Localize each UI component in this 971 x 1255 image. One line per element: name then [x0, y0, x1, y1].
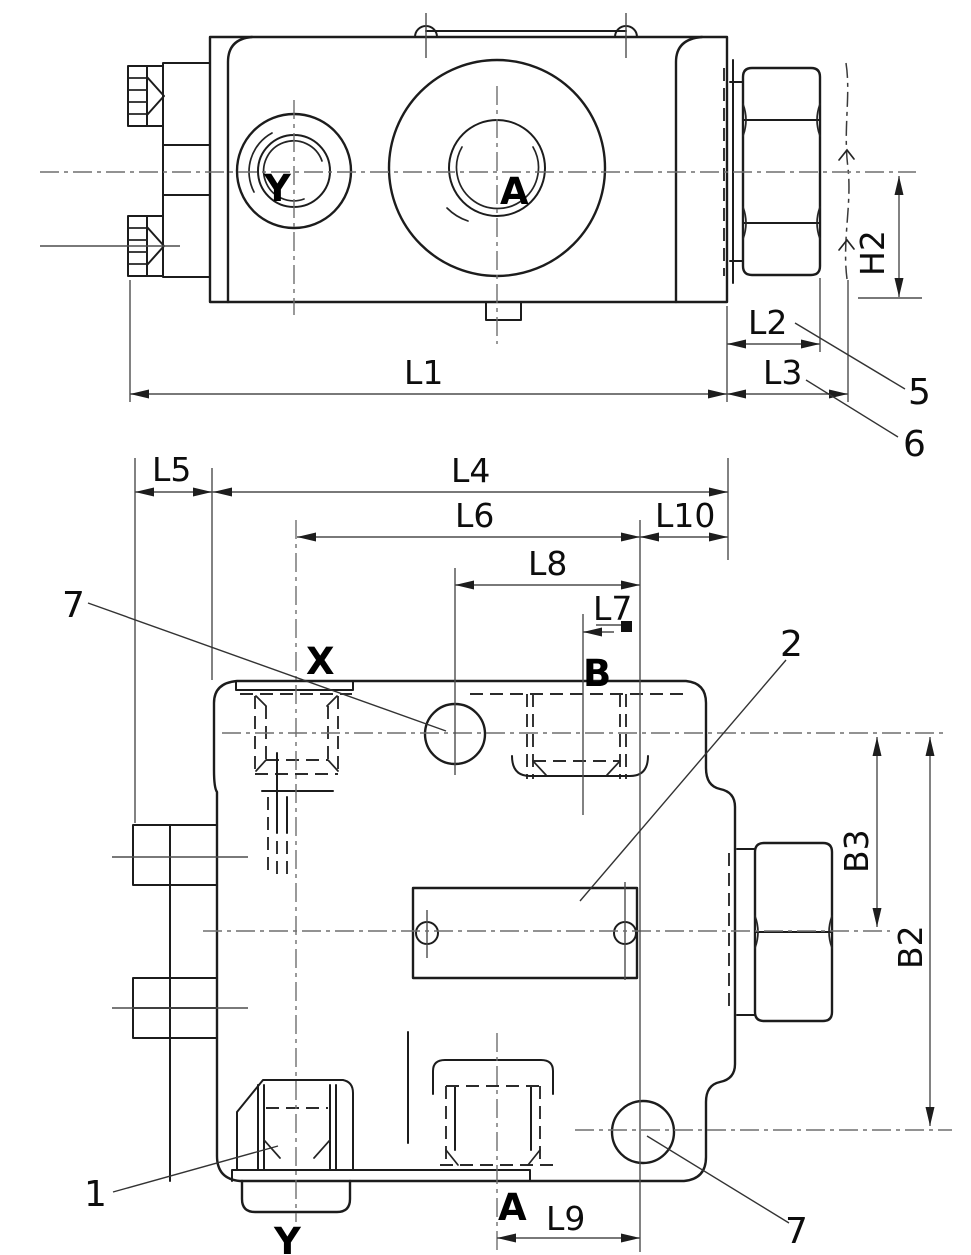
- callout-7-upper: 7: [62, 585, 446, 731]
- valve-drawing-svg: Y A H2: [0, 0, 971, 1255]
- dim-l3-label: L3: [763, 353, 802, 392]
- port-y-label: Y: [263, 167, 292, 210]
- mounting-screws-left: [40, 63, 210, 277]
- break-line-zigzags: [839, 150, 854, 250]
- callout-1-label: 1: [84, 1174, 107, 1215]
- top-screw-centerlines: [426, 13, 626, 58]
- dim-l7: L7: [583, 589, 632, 815]
- top-view: Y A H2: [40, 13, 931, 465]
- port-y-bottom-label: Y: [273, 1220, 302, 1255]
- screw-upper-tip: [147, 77, 164, 115]
- break-line: [846, 63, 849, 279]
- callout-6-leader: [806, 380, 898, 437]
- callout-5: 5: [795, 323, 931, 413]
- dim-l8: L8: [455, 544, 640, 775]
- port-b: B: [470, 652, 684, 779]
- callout-7-lower-label: 7: [785, 1211, 808, 1252]
- bottom-view: X B Y: [62, 450, 952, 1255]
- dim-l10: L10: [640, 496, 728, 1252]
- port-a-bottom-label: A: [498, 1186, 527, 1229]
- dim-l5: L5: [135, 450, 212, 823]
- callout-7-lower: 7: [647, 1136, 808, 1252]
- screw-upper-body: [128, 66, 163, 126]
- port-a-bottom: A: [408, 1032, 553, 1229]
- port-b-chamfers: [533, 761, 620, 775]
- dim-l6: L6: [297, 496, 640, 542]
- dim-l10-label: L10: [655, 496, 715, 535]
- port-y-chamfers: [264, 1140, 330, 1158]
- callout-7-lower-leader: [647, 1136, 789, 1223]
- dim-l5-label: L5: [152, 450, 191, 489]
- mounting-plate: [163, 63, 210, 277]
- bottom-tab: [486, 302, 521, 320]
- dim-l6-label: L6: [455, 496, 494, 535]
- dim-b3-label: B3: [837, 829, 876, 873]
- top-view-body-inner-right: [676, 37, 702, 302]
- dim-l2-label: L2: [748, 303, 787, 342]
- mounting-hole-lower: [612, 1101, 674, 1163]
- port-y-bottom: Y: [232, 1080, 530, 1255]
- callout-2: 2: [580, 624, 803, 901]
- dim-l8-label: L8: [528, 544, 567, 583]
- callout-5-label: 5: [908, 372, 931, 413]
- dim-l9-label: L9: [546, 1199, 585, 1238]
- dim-b2: B2: [891, 737, 935, 1126]
- dim-h2: H2: [853, 176, 922, 298]
- screw-upper-hatch: [129, 78, 147, 114]
- drawing-canvas: Y A H2: [0, 0, 971, 1255]
- dim-l1: L1: [130, 280, 727, 402]
- top-edge-recess: [236, 681, 353, 690]
- dim-l1-label: L1: [404, 353, 443, 392]
- port-a-pad-outline: [433, 1060, 553, 1094]
- callout-2-label: 2: [780, 624, 803, 665]
- callout-7-upper-label: 7: [62, 585, 85, 626]
- dim-l7-label: L7: [593, 589, 632, 628]
- hex-nut-bottom-view: [729, 843, 832, 1021]
- callout-6-label: 6: [903, 424, 926, 465]
- left-mounting-tabs: [112, 825, 248, 1181]
- port-b-label: B: [583, 652, 611, 695]
- dim-l4-label: L4: [451, 451, 490, 490]
- port-a-countersink-arc: [447, 208, 468, 221]
- dim-b2-label: B2: [891, 925, 930, 969]
- bottom-plate-edge: [232, 1170, 530, 1181]
- dim-b3: B3: [837, 737, 882, 927]
- callout-5-leader: [795, 323, 905, 389]
- port-y-thread-lines: [258, 1085, 336, 1170]
- port-a-label: A: [500, 170, 529, 213]
- port-a-solid-lines: [408, 1032, 531, 1150]
- dim-h2-label: H2: [853, 230, 892, 276]
- callout-7-upper-leader: [88, 603, 446, 731]
- port-a-chamfers: [446, 1150, 540, 1165]
- port-x-solid-lines: [262, 753, 333, 833]
- port-b-hidden-lines: [470, 694, 684, 779]
- port-x-label: X: [306, 640, 335, 683]
